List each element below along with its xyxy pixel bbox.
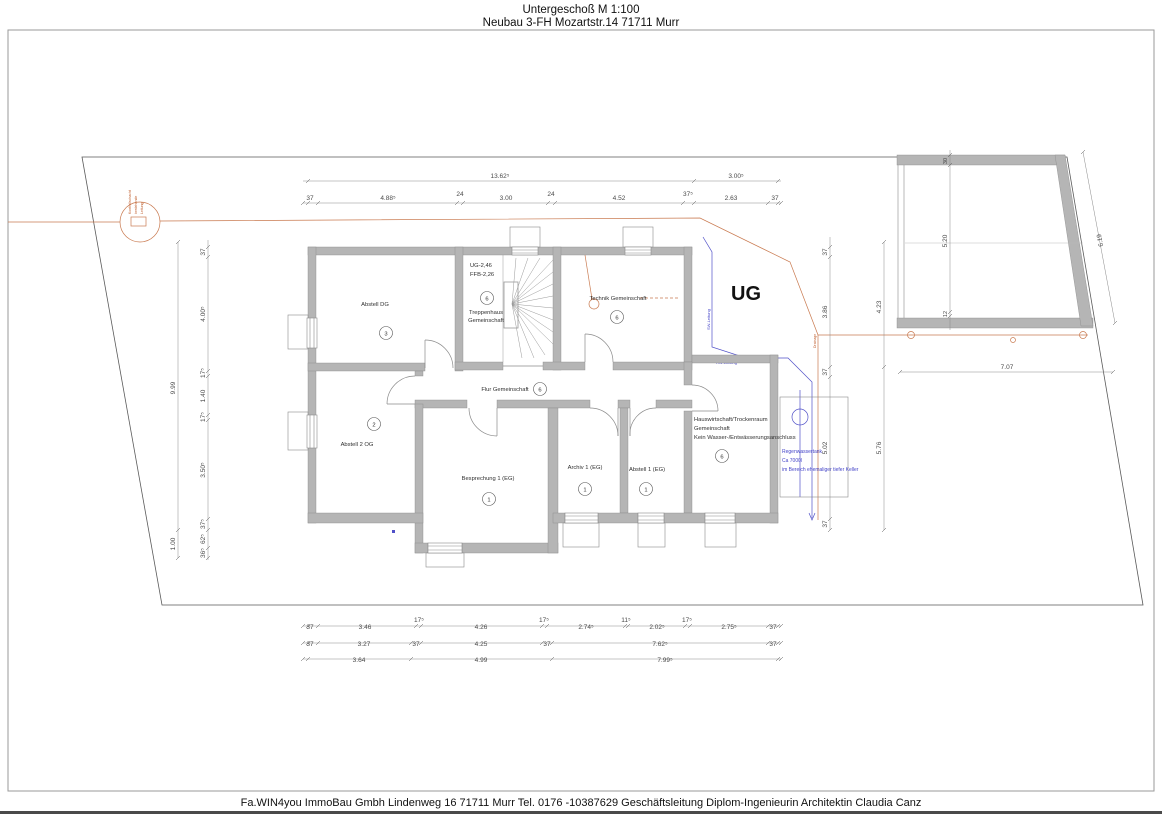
dim-label: 37 [822, 368, 829, 376]
dim-label: 2.75⁵ [721, 624, 737, 631]
drawing-title-line2: Neubau 3-FH Mozartstr.14 71711 Murr [483, 17, 680, 29]
dim-label: 17⁵ [682, 617, 692, 624]
dim-label: 4.99 [475, 657, 488, 664]
dim-label: 30 [943, 158, 949, 164]
dim-label: 62⁵ [200, 534, 207, 544]
door-arc [590, 408, 618, 436]
dim-label: 37 [306, 641, 314, 648]
rainwater-tank: Regenwassertank Ca 7000l im Bereich ehem… [780, 397, 859, 497]
garage [897, 155, 1093, 328]
drawing-title-line1: Untergeschoß M 1:100 [523, 4, 640, 16]
dim-label: 4.23 [876, 300, 883, 313]
dim-label: 3.86 [822, 305, 829, 318]
lightwell-box [623, 227, 653, 247]
dim-label: 7.62⁵ [652, 641, 668, 648]
room-labels: Abstell DG 3 Abstell 2 OG 2 Technik Geme… [341, 263, 796, 506]
dimension-lines [176, 150, 1117, 661]
drawing-footer: Fa.WIN4you ImmoBau Gmbh Lindenweg 16 717… [241, 797, 922, 809]
lightwell-box [638, 523, 665, 547]
tank-label-2: Ca 7000l [782, 458, 802, 464]
dim-label: 3.27 [358, 641, 371, 648]
dim-label: 2.74⁵ [578, 624, 594, 631]
dim-label: 2.02⁵ [649, 624, 665, 631]
manhole-cover [131, 217, 146, 226]
lightwell-box [288, 315, 308, 349]
room-label-archiv: Archiv 1 (EG) [568, 465, 603, 471]
dim-label: 6.19 [1096, 233, 1105, 247]
dim-label: 4.52 [613, 195, 626, 202]
floor-plan-drawing: Untergeschoß M 1:100 Neubau 3-FH Mozarts… [0, 0, 1162, 814]
stair-name-2: Gemeinschaft [468, 318, 504, 324]
lightwell-box [510, 227, 540, 247]
lightwell-box [705, 523, 736, 547]
dim-label: 24 [456, 191, 464, 198]
dim-label: 3.00⁵ [728, 173, 744, 180]
staircase [503, 255, 553, 362]
dim-label: 7.99⁵ [657, 657, 673, 664]
room-label-abstell-1: Abstell 1 (EG) [629, 467, 665, 473]
dim-label: 13.62⁵ [491, 173, 510, 180]
dim-label: 37 [306, 624, 314, 631]
dim-label: 37 [769, 641, 777, 648]
dim-label: 37 [822, 520, 829, 528]
room-label-flur: Flur Gemeinschaft [481, 387, 529, 393]
manhole-annotation: Kontrollschacht bestehende Leitung Drain… [128, 190, 817, 348]
dim-label: 36⁵ [200, 548, 207, 558]
stair-name-1: Treppenhaus [469, 310, 503, 316]
dim-label: 3.50⁵ [200, 462, 207, 478]
dim-label: 2.63 [725, 195, 738, 202]
room-label-besprechung: Besprechung 1 (EG) [462, 476, 515, 482]
room-number: 6 [720, 455, 723, 461]
room-label-technik: Technik Gemeinschaft [589, 296, 646, 302]
blue-pipe-label-vertical: SW-Leitung [706, 309, 711, 330]
room-number: 6 [615, 316, 618, 322]
dim-label: 37 [822, 248, 829, 256]
technik-connection-line [585, 255, 592, 299]
property-boundary [82, 157, 1143, 605]
dim-label: 7.07 [1001, 364, 1014, 371]
door-arc [469, 408, 497, 436]
dim-label: 5.76 [876, 441, 883, 454]
dim-label: 37 [769, 624, 777, 631]
room-number: 1 [487, 498, 490, 504]
tank-label-1: Regenwassertank [782, 449, 823, 455]
dim-label: 17⁵ [200, 412, 207, 422]
building-walls [308, 247, 778, 553]
dim-label: 5.20 [942, 234, 949, 247]
dim-label: 9.99 [170, 381, 177, 394]
dim-label: 17⁵ [539, 617, 549, 624]
dim-label: 4.00⁵ [200, 306, 207, 322]
dim-label: 37 [200, 248, 207, 256]
stair-elevation-1: UG-2,46 [470, 263, 492, 269]
door-arc [585, 334, 613, 362]
room-number: 6 [485, 297, 488, 303]
lightwell-box [563, 523, 599, 547]
tank-label-3: im Bereich ehemaliger tiefer Keller [782, 467, 859, 473]
room-number: 1 [583, 488, 586, 494]
drain-marker [392, 530, 395, 533]
dim-label: 4.25 [475, 641, 488, 648]
dim-label: 37⁵ [200, 519, 207, 529]
door-arc [692, 385, 718, 411]
dim-label: 1.40 [200, 389, 207, 402]
dim-label: 37 [306, 195, 314, 202]
dim-label: 3.46 [359, 624, 372, 631]
dim-label: 17⁵ [200, 368, 207, 378]
room-number: 1 [644, 488, 647, 494]
door-arc [387, 376, 415, 404]
page-frame: Untergeschoß M 1:100 Neubau 3-FH Mozarts… [0, 4, 1162, 814]
dim-label: 1.00 [170, 537, 177, 550]
room-number: 2 [372, 423, 375, 429]
room-label-hauswirtschaft-3: Kein Wasser-/Entwässerungsanschluss [694, 435, 796, 441]
manhole-label-3: Leitung [140, 202, 144, 214]
dim-label: 12 [943, 311, 949, 317]
manhole-label-2: bestehende [134, 196, 138, 214]
dim-label: 11⁵ [621, 617, 631, 624]
orange-pipe-label: Drainage [813, 334, 817, 348]
dim-label: 24 [547, 191, 555, 198]
room-number: 3 [384, 332, 387, 338]
drawing-border [8, 30, 1154, 791]
dim-label: 37 [543, 641, 551, 648]
rainwater-line [703, 237, 812, 518]
dim-label: 5.02 [822, 441, 829, 454]
room-label-hauswirtschaft-1: Hauswirtschaft/Trockenraum [694, 417, 768, 423]
dim-label: 4.26 [475, 624, 488, 631]
stair-elevation-2: FFB-2,26 [470, 272, 494, 278]
room-label-hauswirtschaft-2: Gemeinschaft [694, 426, 730, 432]
room-label-abstell-2og: Abstell 2 OG [341, 442, 374, 448]
door-arc [425, 340, 453, 368]
dim-label: 4.88⁵ [380, 195, 396, 202]
room-label-abstell-dg: Abstell DG [361, 302, 389, 308]
dim-label: 37⁵ [683, 191, 693, 198]
dim-label: 17⁵ [414, 617, 424, 624]
dim-label: 37 [412, 641, 420, 648]
dim-label: 3.64 [353, 657, 366, 664]
dim-label: 3.00 [500, 195, 513, 202]
lightwell-box [426, 553, 464, 567]
door-arc [630, 408, 656, 436]
drawing-page: Untergeschoß M 1:100 Neubau 3-FH Mozarts… [0, 0, 1162, 814]
dim-label: 37 [771, 195, 779, 202]
manhole-label-1: Kontrollschacht [128, 190, 132, 214]
room-number: 6 [538, 388, 541, 394]
building-level-label: UG [731, 283, 761, 305]
lightwell-box [288, 412, 308, 450]
